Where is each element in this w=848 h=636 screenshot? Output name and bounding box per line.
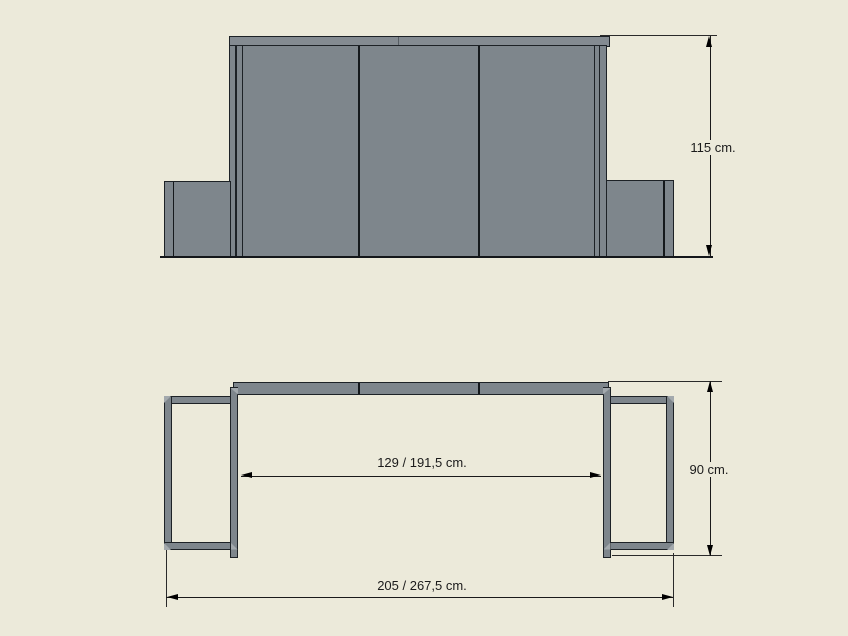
depth-dimension-extension-top bbox=[608, 381, 722, 382]
arrow-down-icon bbox=[707, 545, 713, 556]
left-armrest-edge-line bbox=[173, 182, 175, 257]
arrow-up-icon bbox=[707, 381, 713, 392]
plan-right-frame-top-bar bbox=[610, 396, 674, 404]
drawing-canvas: 115 cm. 129 / 1 bbox=[0, 0, 848, 636]
plan-left-side-panel bbox=[230, 387, 239, 558]
arrow-left-icon bbox=[167, 594, 178, 600]
right-armrest bbox=[606, 180, 675, 258]
arrow-right-icon bbox=[590, 472, 601, 478]
panel-divider-1 bbox=[358, 46, 360, 257]
plan-back-rail bbox=[233, 382, 609, 395]
plan-rail-joint-1 bbox=[358, 383, 360, 394]
plan-left-frame-bottom-bar bbox=[164, 542, 231, 550]
depth-dimension-extension-bottom bbox=[612, 555, 722, 556]
overall-width-dimension-label: 205 / 267,5 cm. bbox=[345, 578, 499, 593]
arrow-up-icon bbox=[706, 36, 712, 47]
ground-line bbox=[160, 256, 713, 258]
height-dimension-extension-line bbox=[600, 35, 717, 36]
panel-divider-2 bbox=[478, 46, 480, 257]
inner-width-dimension-label: 129 / 191,5 cm. bbox=[372, 455, 472, 470]
overall-width-dimension-line bbox=[166, 597, 673, 598]
plan-right-side-panel bbox=[603, 387, 612, 558]
arrow-down-icon bbox=[706, 245, 712, 256]
plan-left-frame-outer-bar bbox=[164, 396, 172, 550]
plan-rail-joint-2 bbox=[478, 383, 480, 394]
back-panel bbox=[242, 45, 595, 258]
inner-width-dimension-line bbox=[241, 476, 601, 477]
plan-left-frame-top-bar bbox=[164, 396, 231, 404]
height-dimension-label: 115 cm. bbox=[684, 140, 742, 155]
plan-right-frame-outer-bar bbox=[666, 396, 674, 550]
left-armrest bbox=[164, 181, 231, 258]
plan-right-frame-bottom-bar bbox=[610, 542, 674, 550]
depth-dimension-label: 90 cm. bbox=[682, 462, 736, 477]
right-armrest-edge-line bbox=[663, 181, 665, 257]
arrow-right-icon bbox=[662, 594, 673, 600]
arrow-left-icon bbox=[241, 472, 252, 478]
